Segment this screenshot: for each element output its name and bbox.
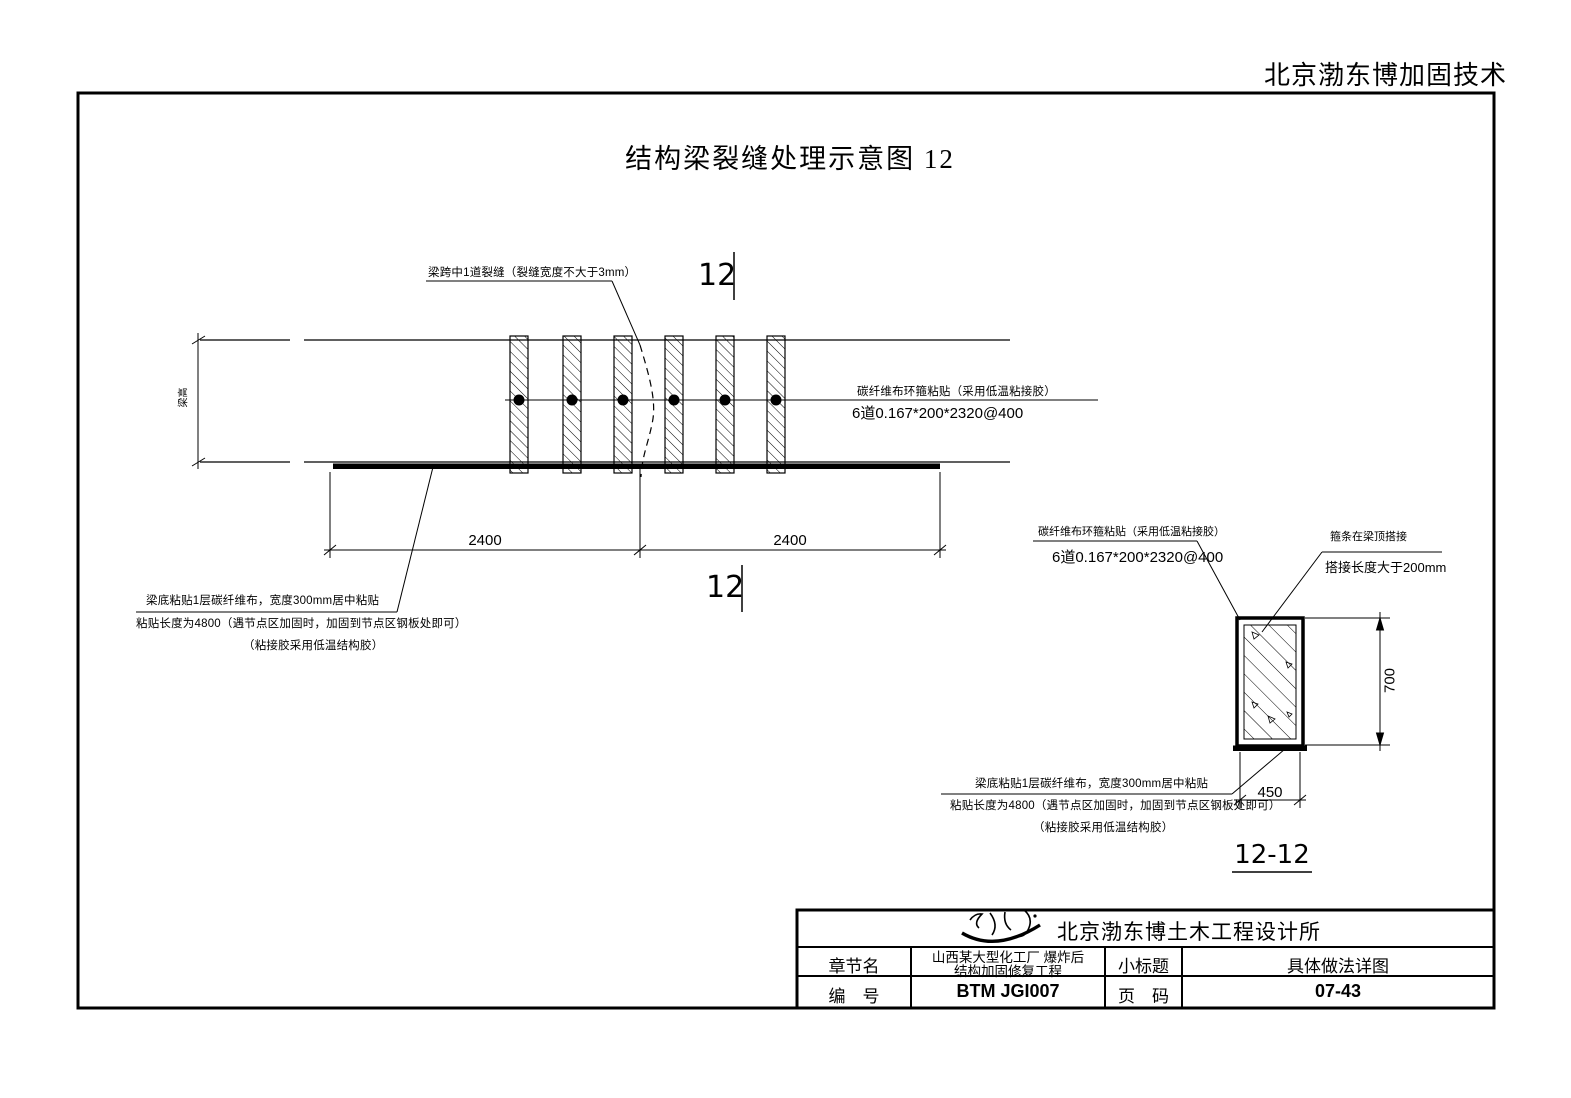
section-height-dimension: [1305, 612, 1390, 751]
subtitle-label: 小标题: [1105, 952, 1182, 977]
bottom-note-leader: [136, 467, 433, 612]
dim-700: 700: [1382, 659, 1399, 703]
hoop-note-line2: 6道0.167*200*2320@400: [852, 402, 1023, 423]
page-value: 07-43: [1182, 981, 1494, 1002]
beam-height-label: 梁高: [175, 376, 190, 420]
section-hoop-note-line1: 碳纤维布环箍粘贴（采用低温粘接胶）: [1038, 523, 1225, 539]
hoop-note-line1: 碳纤维布环箍粘贴（采用低温粘接胶）: [857, 383, 1056, 399]
project-name-line2: 结构加固修复工程: [911, 960, 1105, 980]
section-bottom-note-line3: （粘接胶采用低温结构胶）: [1033, 819, 1173, 835]
lap-note-line2: 搭接长度大于200mm: [1325, 557, 1446, 576]
section-marker-bottom: 12: [706, 570, 744, 605]
span-dimension: [324, 466, 946, 558]
lap-note-line1: 箍条在梁顶搭接: [1330, 528, 1407, 544]
beam-bottom-note-line2: 粘贴长度为4800（遇节点区加固时，加固到节点区钢板处即可）: [136, 615, 467, 631]
beam-bottom-note-line1: 梁底粘贴1层碳纤维布，宽度300mm居中粘贴: [146, 592, 379, 608]
dim-2400-left: 2400: [450, 532, 520, 549]
section-note-leaders: [941, 541, 1442, 794]
beam-outline: [200, 340, 1010, 462]
dim-2400-right: 2400: [755, 532, 825, 549]
section-marker-top: 12: [698, 258, 736, 293]
drawing-title: 结构梁裂缝处理示意图 12: [555, 137, 1025, 176]
chapter-label: 章节名: [797, 952, 911, 977]
subtitle-value: 具体做法详图: [1182, 952, 1494, 977]
section-bottom-note-line2: 粘贴长度为4800（遇节点区加固时，加固到节点区钢板处即可）: [950, 797, 1281, 813]
cfrp-hoop-strips: [510, 336, 785, 473]
company-name: 北京渤东博土木工程设计所: [1057, 916, 1321, 946]
section-label: 12-12: [1230, 840, 1314, 870]
section-cfrp-bottom-strip: [1233, 746, 1307, 752]
watermark: 北京渤东博加固技术: [1264, 55, 1507, 92]
section-bottom-note-line1: 梁底粘贴1层碳纤维布，宽度300mm居中粘贴: [975, 775, 1208, 791]
cfrp-bottom-strip: [333, 464, 940, 470]
crack-note: 梁跨中1道裂缝（裂缝宽度不大于3mm）: [428, 264, 636, 280]
section-hoop-note-line2: 6道0.167*200*2320@400: [1052, 546, 1223, 567]
beam-height-dimension: [192, 333, 205, 469]
company-logo: [962, 910, 1040, 941]
beam-bottom-note-line3: （粘接胶采用低温结构胶）: [243, 637, 383, 653]
number-label: 编 号: [797, 982, 911, 1007]
page-label: 页 码: [1105, 982, 1182, 1007]
number-value: BTM JGI007: [911, 981, 1105, 1002]
